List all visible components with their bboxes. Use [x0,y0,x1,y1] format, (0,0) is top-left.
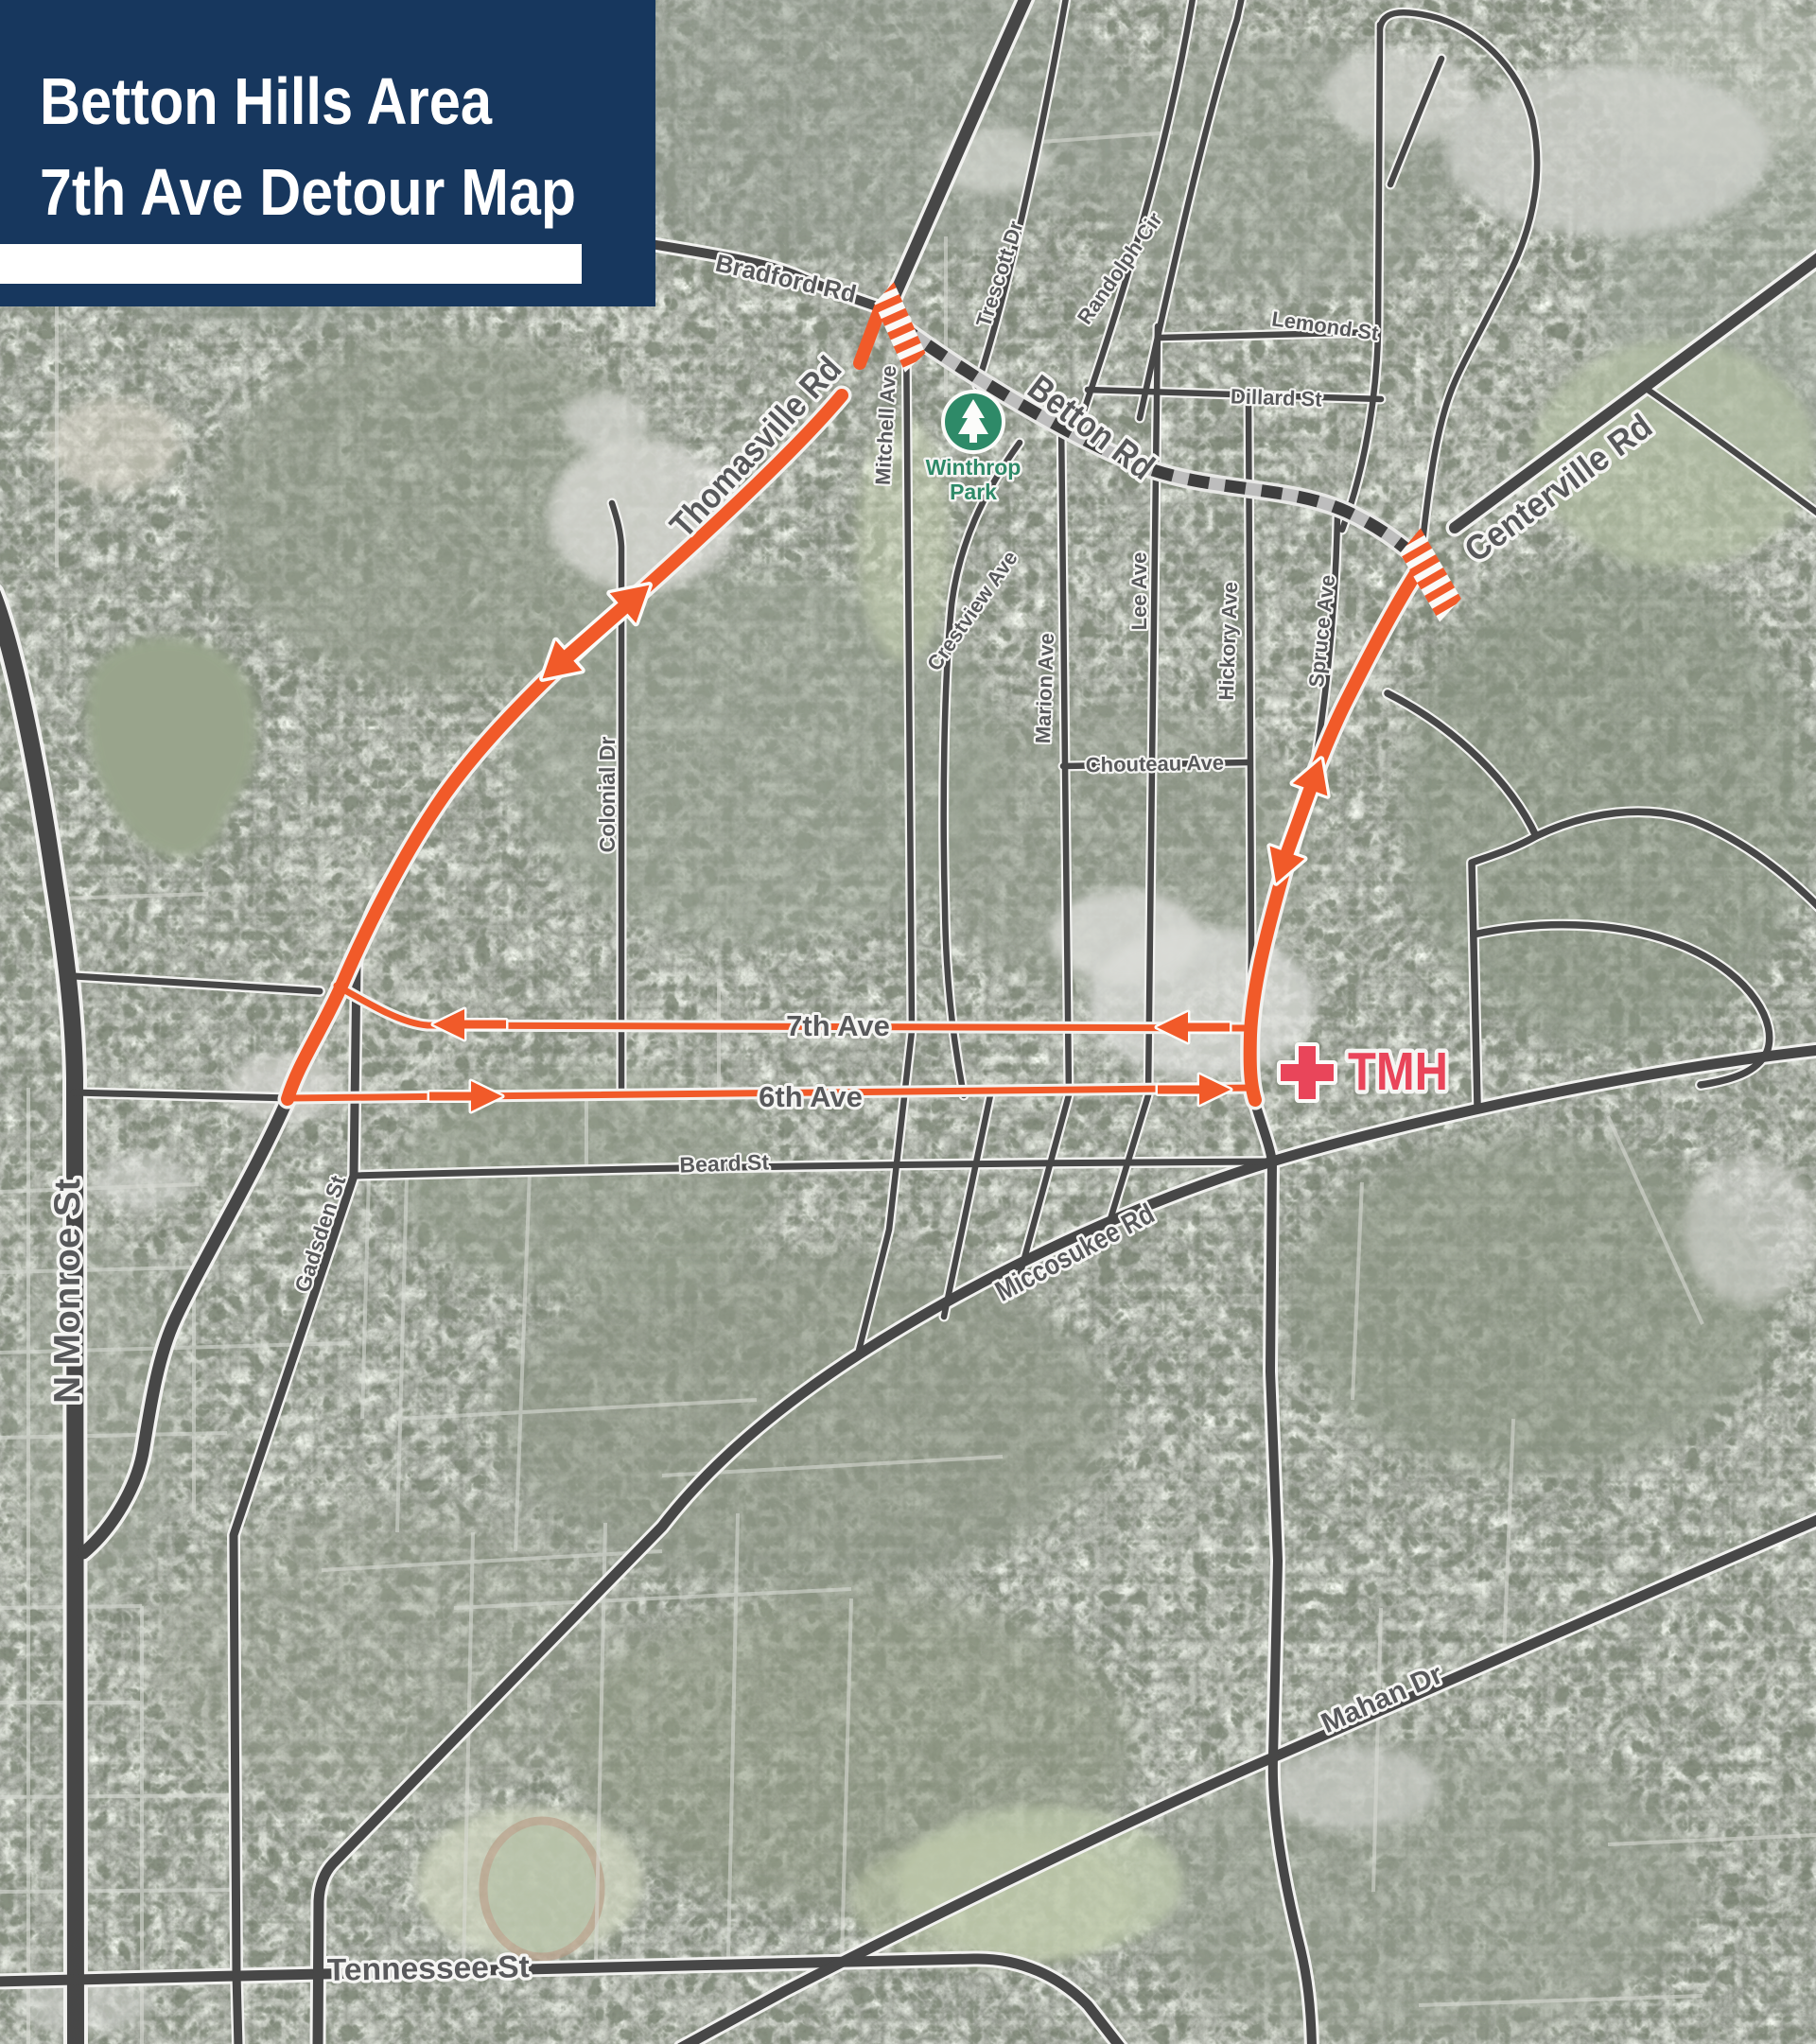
svg-text:Beard St: Beard St [679,1149,770,1177]
svg-text:Dillard St: Dillard St [1231,384,1323,411]
svg-text:7th Ave Detour Map: 7th Ave Detour Map [40,155,576,229]
svg-text:N Monroe St: N Monroe St [47,1179,88,1404]
svg-text:Colonial Dr: Colonial Dr [595,737,620,853]
svg-text:6th Ave: 6th Ave [759,1080,863,1113]
svg-text:Lee Ave: Lee Ave [1127,552,1151,631]
svg-text:Hickory Ave: Hickory Ave [1214,582,1242,701]
svg-text:Betton Hills Area: Betton Hills Area [40,64,493,138]
svg-text:Winthrop: Winthrop [926,455,1021,480]
svg-text:7th Ave: 7th Ave [786,1009,890,1042]
svg-text:Tennessee St: Tennessee St [326,1948,530,1987]
svg-text:Marion Ave: Marion Ave [1031,633,1058,744]
svg-text:Park: Park [950,480,997,504]
svg-text:TMH: TMH [1348,1041,1448,1102]
svg-text:Chouteau Ave: Chouteau Ave [1086,751,1225,777]
